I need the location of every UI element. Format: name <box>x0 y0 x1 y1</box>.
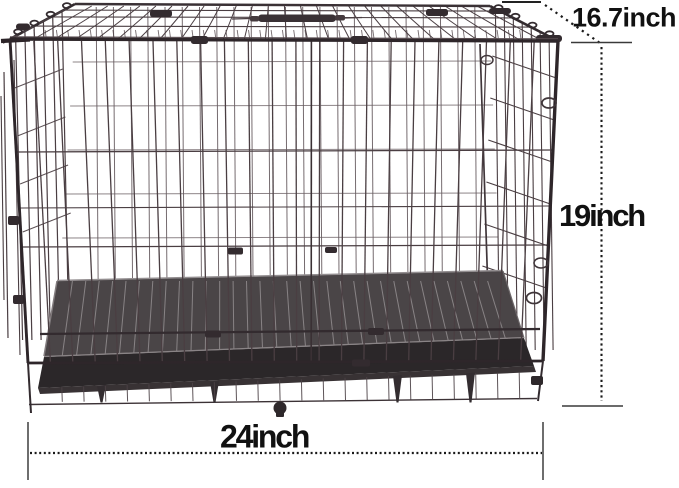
svg-text:16.7inch: 16.7inch <box>572 3 676 33</box>
svg-text:24inch: 24inch <box>220 419 309 455</box>
svg-text:19inch: 19inch <box>559 198 645 233</box>
